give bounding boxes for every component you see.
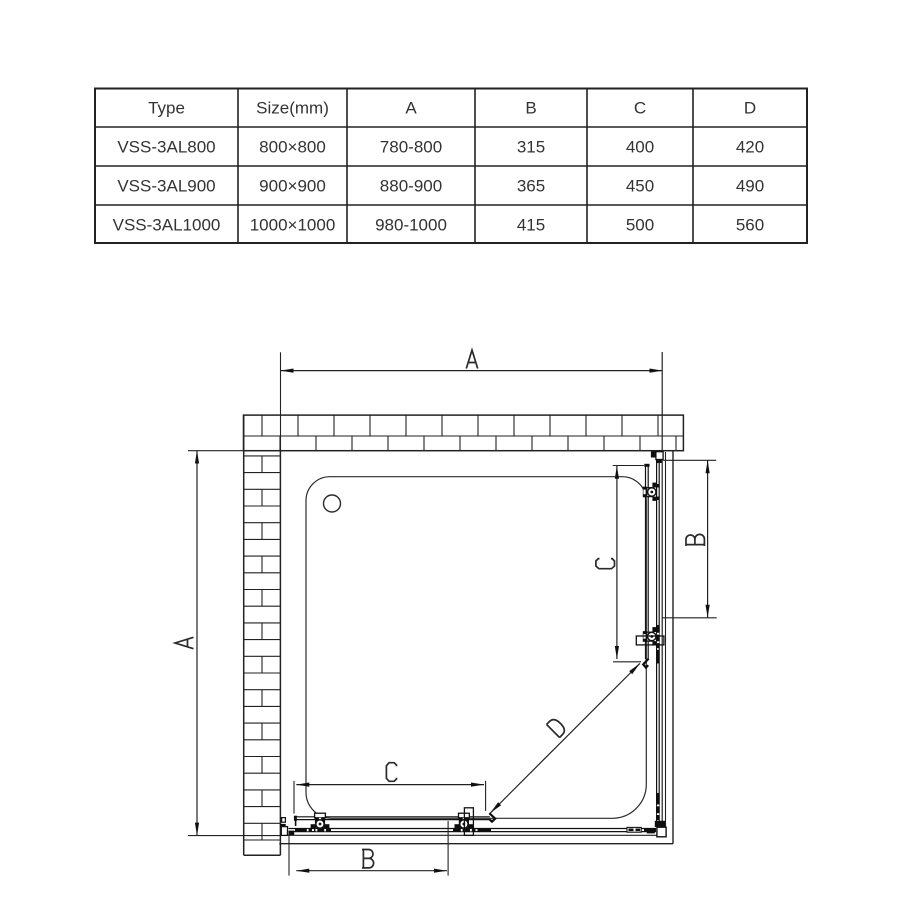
svg-text:900×900: 900×900 — [259, 177, 326, 196]
svg-text:VSS-3AL1000: VSS-3AL1000 — [113, 216, 221, 235]
svg-text:400: 400 — [626, 138, 654, 157]
svg-text:880-900: 880-900 — [380, 177, 442, 196]
svg-text:560: 560 — [736, 216, 764, 235]
svg-text:C: C — [634, 99, 646, 118]
svg-text:780-800: 780-800 — [380, 138, 442, 157]
svg-text:1000×1000: 1000×1000 — [250, 216, 336, 235]
svg-text:VSS-3AL800: VSS-3AL800 — [117, 138, 215, 157]
svg-text:D: D — [744, 99, 756, 118]
svg-text:980-1000: 980-1000 — [375, 216, 447, 235]
svg-text:500: 500 — [626, 216, 654, 235]
svg-text:365: 365 — [517, 177, 545, 196]
svg-text:490: 490 — [736, 177, 764, 196]
svg-text:VSS-3AL900: VSS-3AL900 — [117, 177, 215, 196]
svg-text:415: 415 — [517, 216, 545, 235]
svg-text:315: 315 — [517, 138, 545, 157]
svg-text:800×800: 800×800 — [259, 138, 326, 157]
svg-text:Type: Type — [148, 99, 185, 118]
svg-text:420: 420 — [736, 138, 764, 157]
svg-text:450: 450 — [626, 177, 654, 196]
svg-text:B: B — [525, 99, 536, 118]
svg-text:A: A — [405, 99, 417, 118]
svg-text:Size(mm): Size(mm) — [256, 99, 329, 118]
